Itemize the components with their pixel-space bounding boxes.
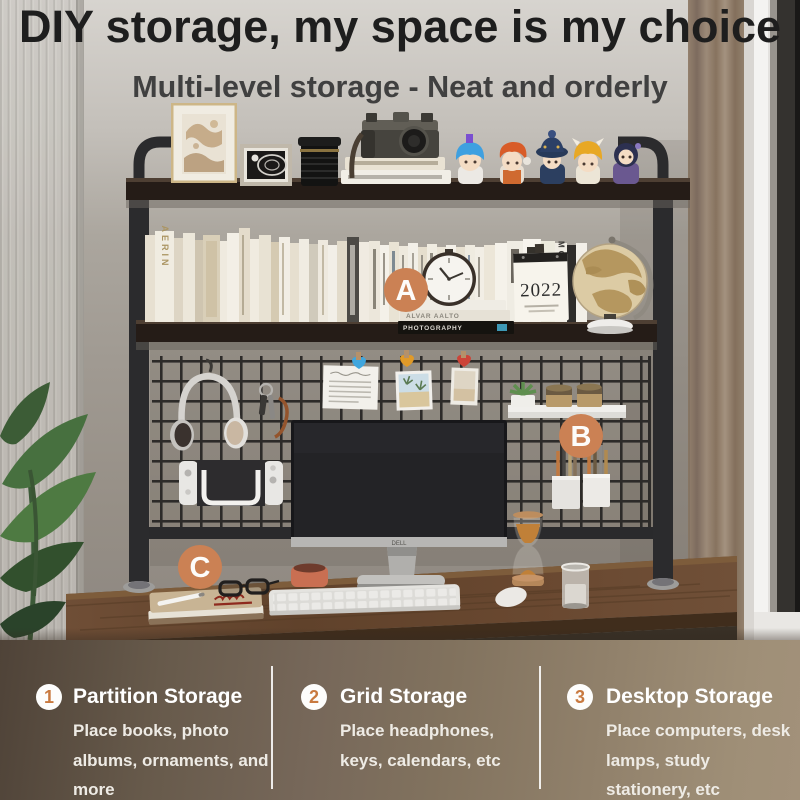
svg-text:DELL: DELL — [391, 541, 407, 547]
svg-text:C: C — [190, 552, 211, 584]
svg-text:A: A — [396, 275, 417, 307]
svg-text:PHOTOGRAPHY: PHOTOGRAPHY — [403, 325, 463, 332]
svg-text:B: B — [571, 421, 592, 453]
svg-text:AERIN: AERIN — [160, 225, 170, 268]
svg-text:2022: 2022 — [520, 279, 563, 301]
svg-text:ALVAR AALTO: ALVAR AALTO — [406, 313, 460, 320]
